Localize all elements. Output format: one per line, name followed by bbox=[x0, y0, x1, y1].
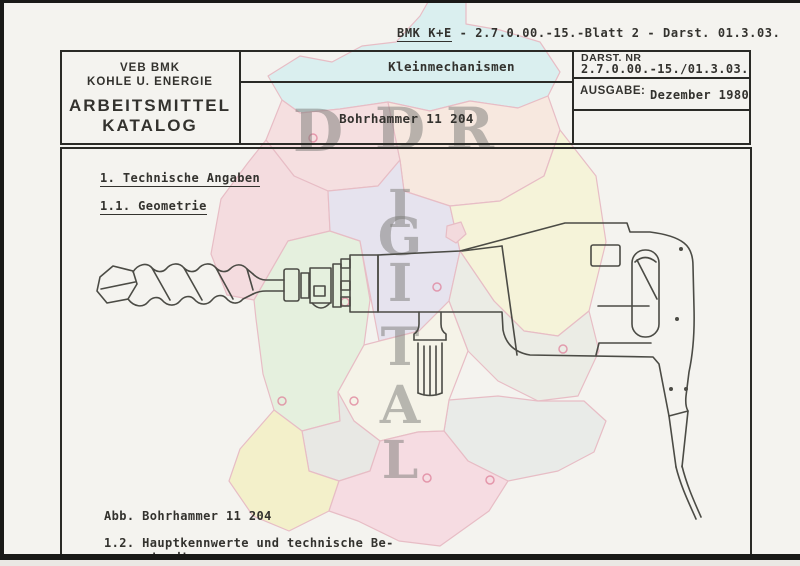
org-name: VEB BMK KOHLE U. ENERGIE bbox=[60, 61, 240, 89]
section-heading-1-text: 1. Technische Angaben bbox=[100, 171, 260, 187]
reference-line: BMK K+E - 2.7.0.00.-15.-Blatt 2 - Darst.… bbox=[397, 26, 780, 40]
scan-margin-bottom bbox=[0, 560, 800, 566]
body-outline bbox=[378, 223, 694, 416]
catalog-title-line1: ARBEITSMITTEL bbox=[60, 96, 240, 116]
reference-code: BMK K+E bbox=[397, 26, 452, 42]
scan-edge-left bbox=[0, 0, 4, 566]
drill-bit-tip bbox=[97, 266, 137, 303]
reference-rest: - 2.7.0.00.-15.-Blatt 2 - Darst. 01.3.03… bbox=[452, 26, 781, 40]
drill-bit-flutes bbox=[133, 264, 253, 274]
category-label: Kleinmechanismen bbox=[240, 59, 573, 74]
figure-caption: Abb. Bohrhammer 11 204 bbox=[104, 509, 272, 523]
ausgabe-value: Dezember 1980 bbox=[650, 88, 749, 102]
item-title: Bohrhammer 11 204 bbox=[240, 111, 573, 126]
scanned-catalog-page: D D R I G I T A L BMK K+E - 2.7.0.00.-15… bbox=[0, 0, 800, 566]
section-heading-1-2: 1.2. Hauptkennwerte und technische Be- bbox=[104, 536, 394, 550]
switch bbox=[591, 245, 620, 266]
org-name-line2: KOHLE U. ENERGIE bbox=[60, 75, 240, 89]
chuck bbox=[284, 269, 299, 301]
screw-dots bbox=[669, 247, 688, 391]
org-name-line1: VEB BMK bbox=[60, 61, 240, 75]
catalog-title-line2: KATALOG bbox=[60, 116, 240, 136]
section-heading-1-1-text: 1.1. Geometrie bbox=[100, 199, 207, 215]
side-handle bbox=[414, 312, 446, 396]
darst-value: 2.7.0.00.-15./01.3.03. bbox=[581, 62, 749, 76]
ausgabe-label: AUSGABE: bbox=[580, 85, 645, 97]
section-heading-1: 1. Technische Angaben bbox=[100, 171, 260, 185]
scan-edge-top bbox=[0, 0, 800, 3]
power-cable bbox=[669, 411, 701, 519]
section-heading-1-1: 1.1. Geometrie bbox=[100, 199, 207, 213]
catalog-title: ARBEITSMITTEL KATALOG bbox=[60, 96, 240, 136]
